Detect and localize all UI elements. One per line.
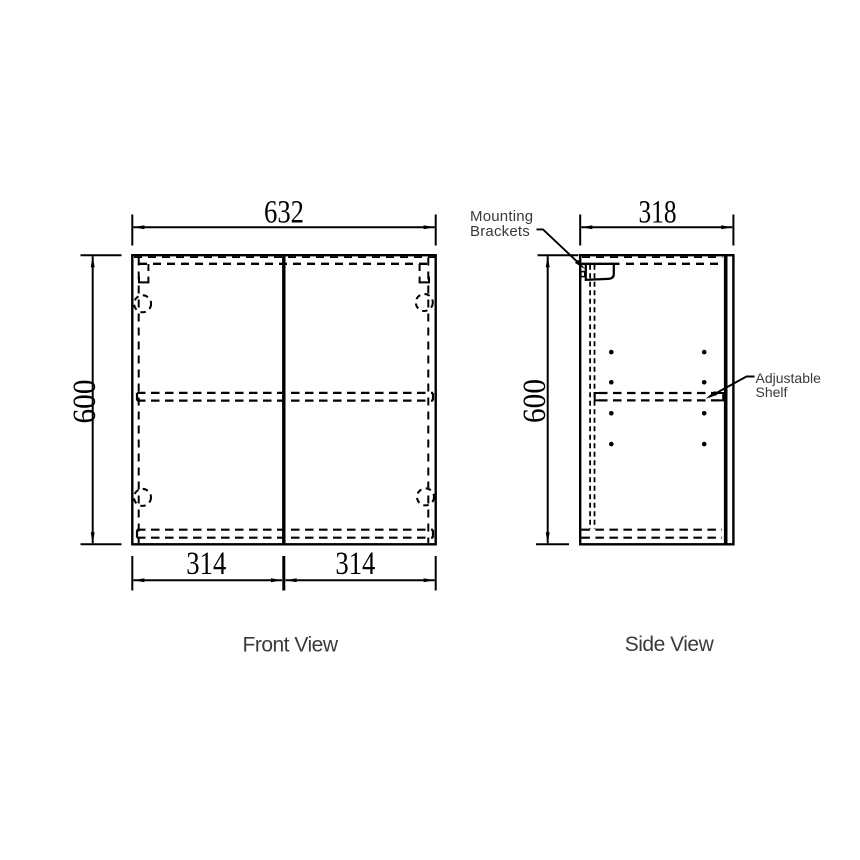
svg-text:600: 600 xyxy=(517,379,553,423)
svg-text:318: 318 xyxy=(639,195,677,231)
svg-text:Brackets: Brackets xyxy=(470,223,530,240)
svg-text:632: 632 xyxy=(264,195,304,231)
svg-text:314: 314 xyxy=(186,546,226,582)
svg-text:600: 600 xyxy=(67,380,103,424)
svg-text:314: 314 xyxy=(335,546,375,582)
svg-text:Shelf: Shelf xyxy=(756,384,788,400)
svg-text:Front View: Front View xyxy=(243,634,339,657)
svg-text:Side View: Side View xyxy=(625,633,715,656)
